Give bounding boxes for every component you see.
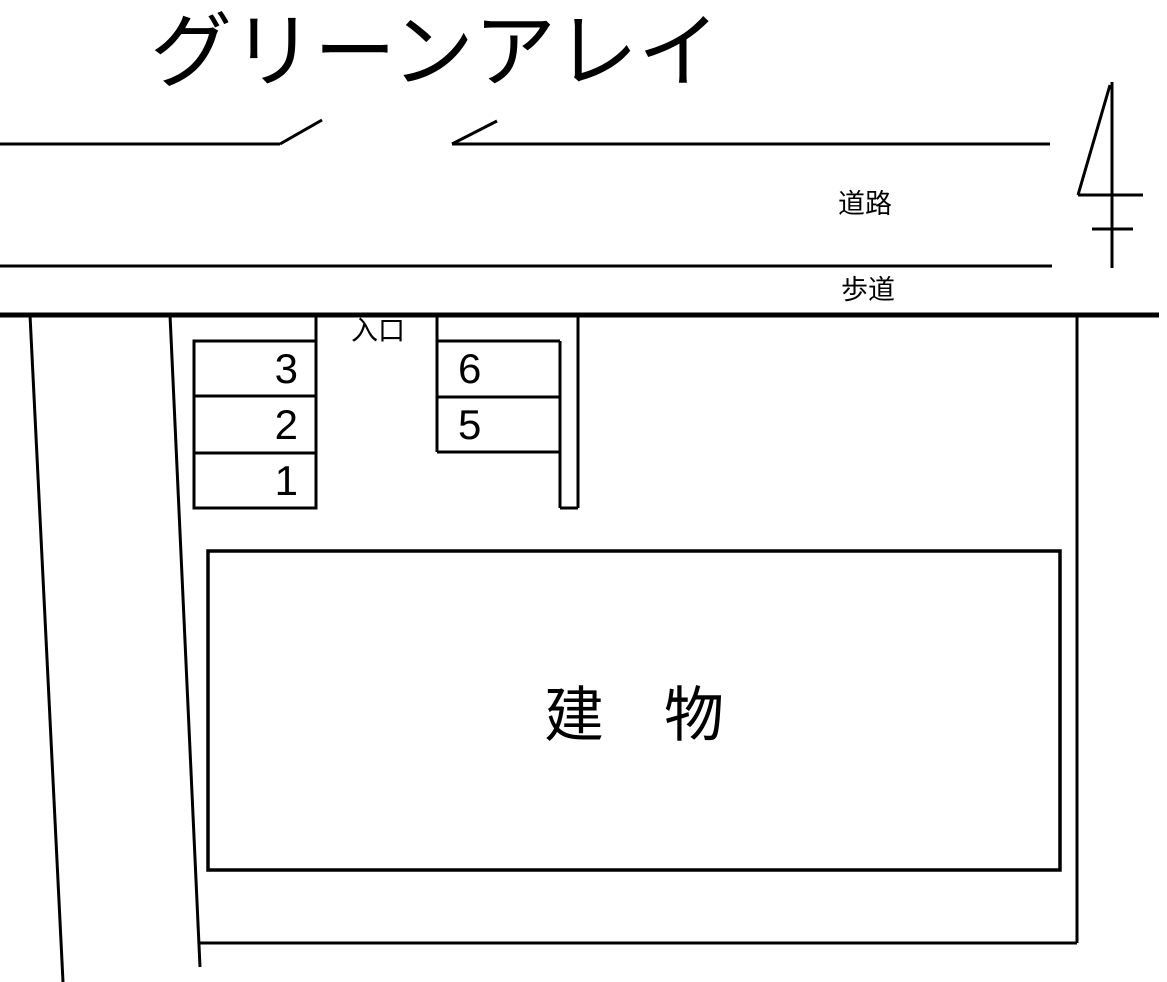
parking-stall-2: 2 bbox=[194, 396, 298, 453]
building-label: 建 物 bbox=[208, 551, 1060, 870]
parking-stall-5: 5 bbox=[458, 397, 560, 452]
site-title: グリーンアレイ bbox=[150, 8, 720, 98]
parking-stall-6: 6 bbox=[458, 341, 560, 397]
entrance-label: 入口 bbox=[351, 317, 405, 347]
leader-break-tick-left bbox=[280, 120, 322, 144]
road-label: 道路 bbox=[838, 190, 892, 220]
site-plan: グリーンアレイ 道路 歩道 入口 建 物 3 2 1 6 5 bbox=[0, 0, 1167, 982]
leader-break-tick-right bbox=[452, 121, 497, 144]
utility-pole-icon bbox=[1078, 82, 1143, 268]
parking-stall-3: 3 bbox=[194, 341, 298, 396]
west-boundary-line-outer bbox=[30, 315, 63, 982]
sidewalk-label: 歩道 bbox=[841, 276, 895, 306]
parking-stall-1: 1 bbox=[194, 453, 298, 508]
